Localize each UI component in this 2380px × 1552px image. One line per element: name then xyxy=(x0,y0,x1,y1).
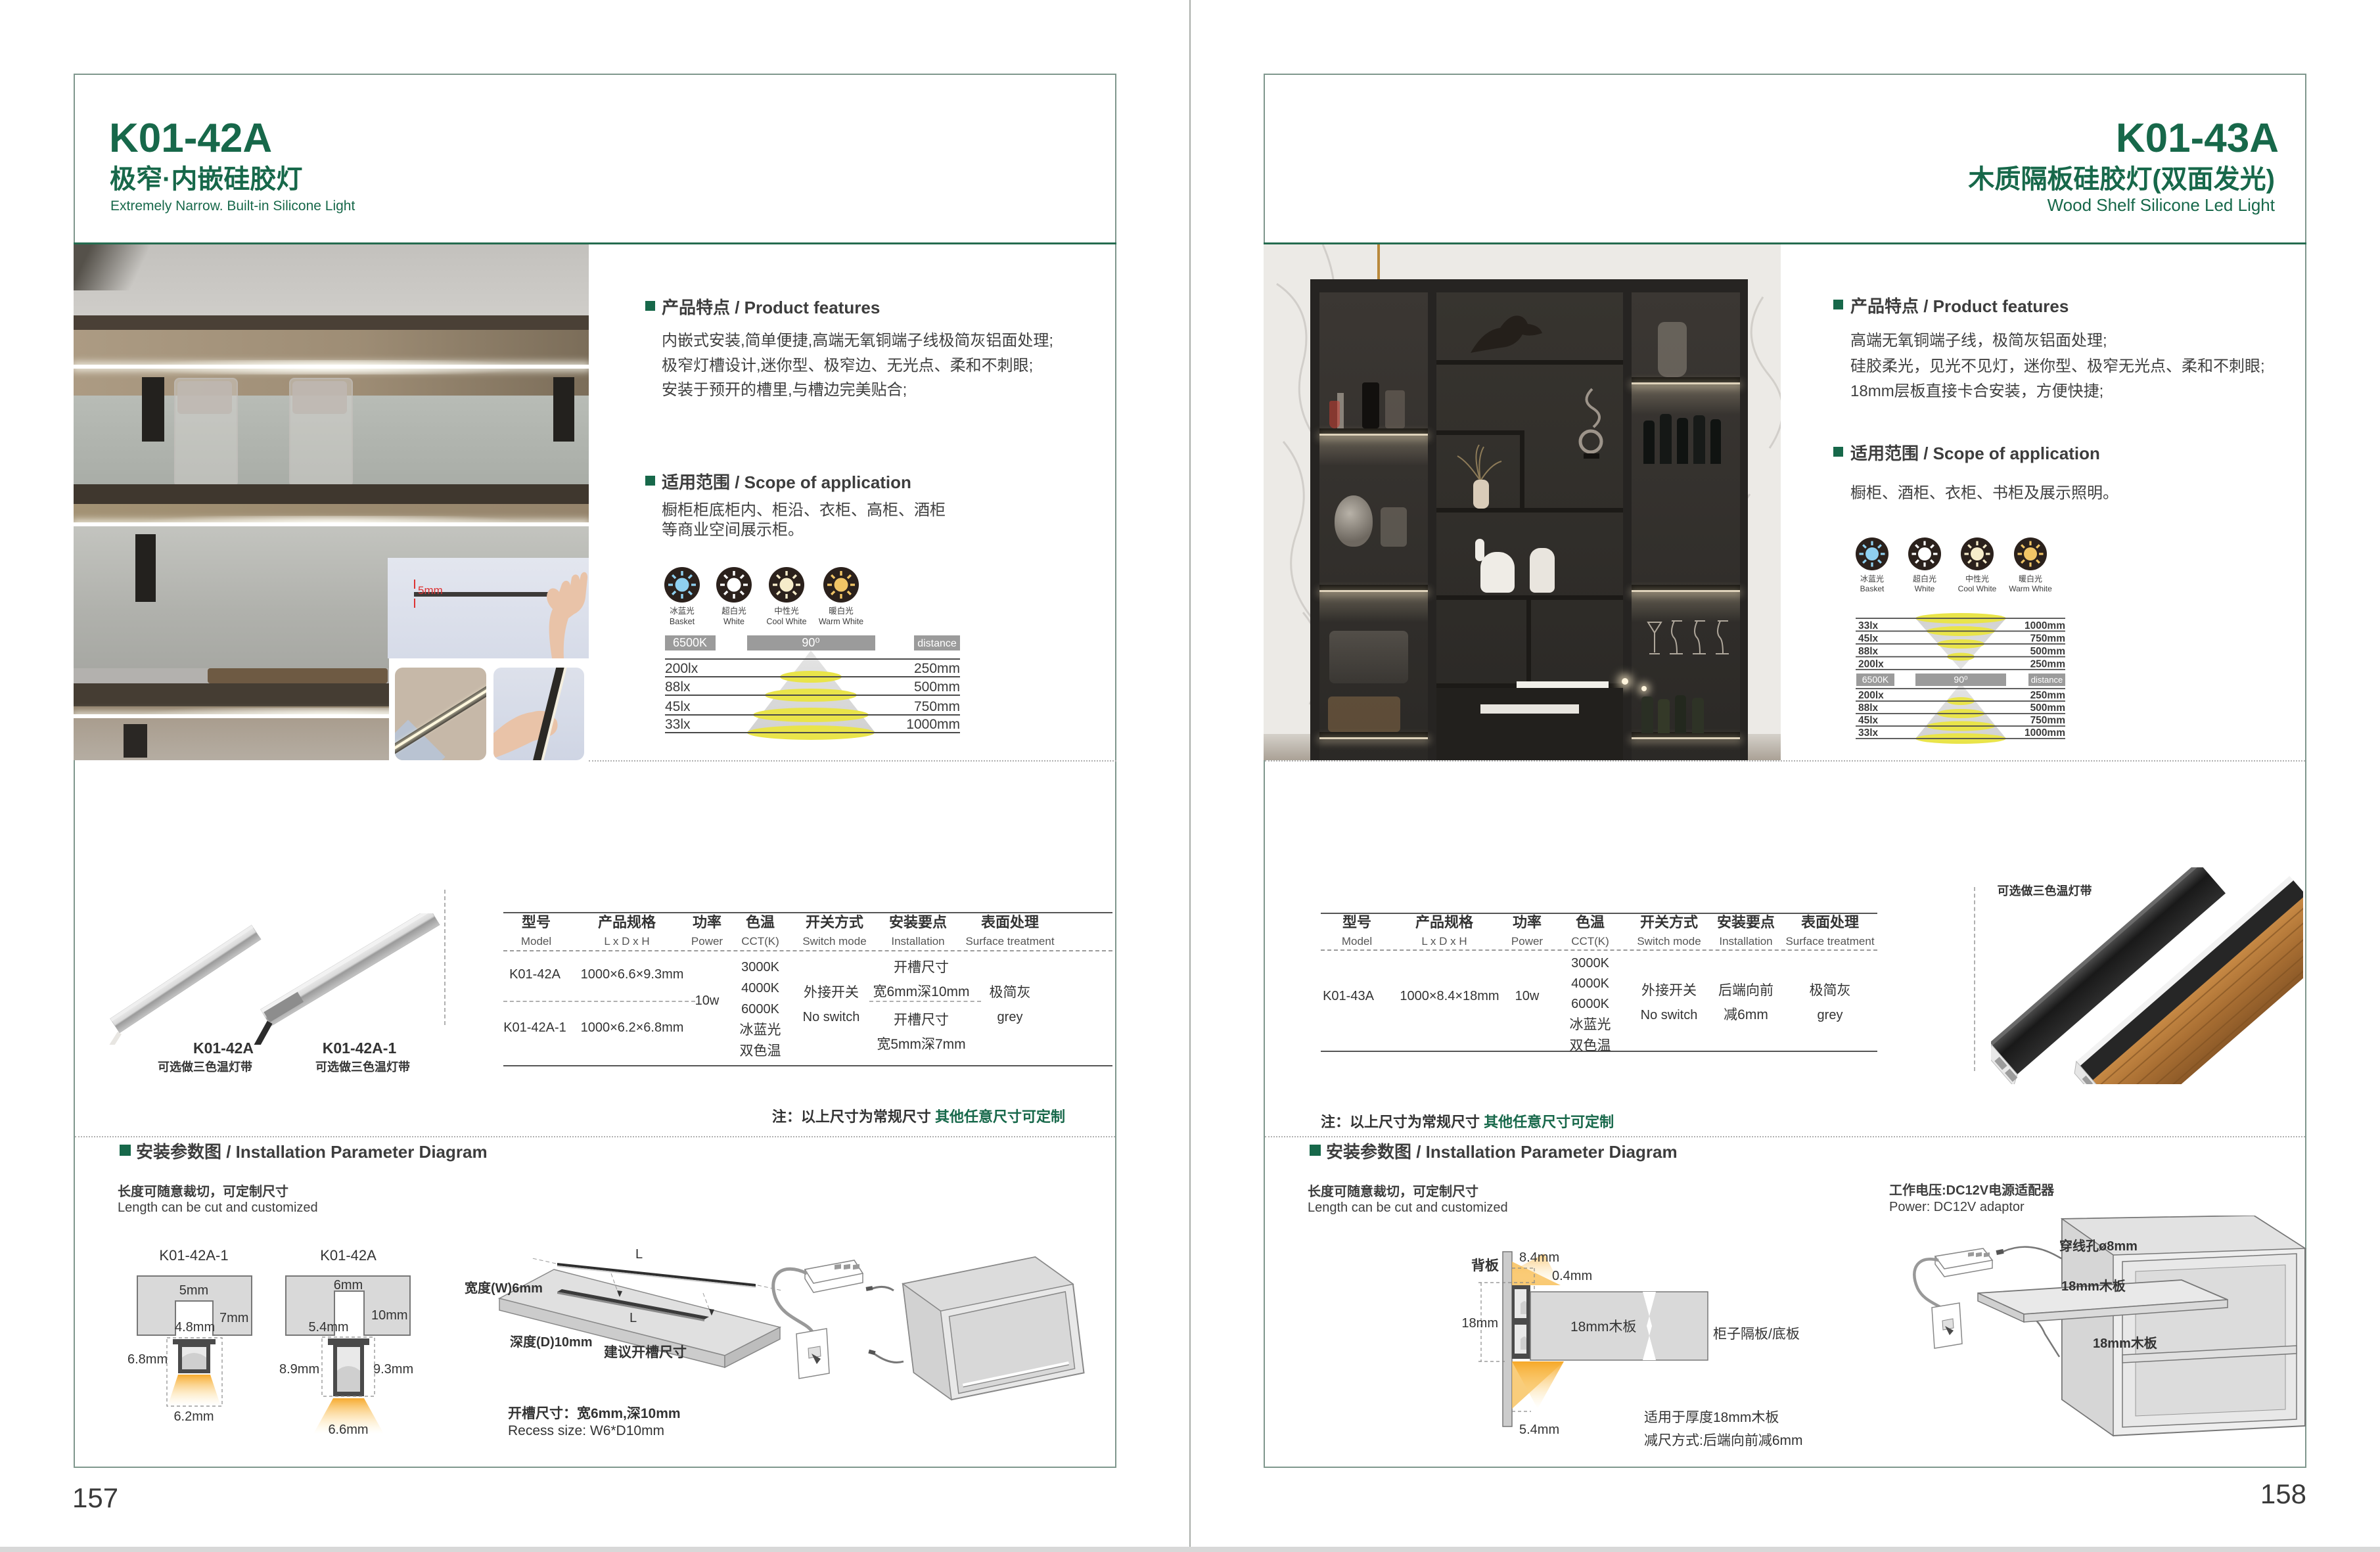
svg-text:5mm: 5mm xyxy=(179,1283,208,1298)
svg-text:6mm: 6mm xyxy=(334,1278,363,1292)
svg-text:K01-42A-1: K01-42A-1 xyxy=(159,1247,228,1264)
svg-text:distance: distance xyxy=(2031,675,2063,685)
svg-text:750mm: 750mm xyxy=(914,699,960,714)
svg-text:1000mm: 1000mm xyxy=(906,717,960,732)
svg-text:6.2mm: 6.2mm xyxy=(173,1409,214,1424)
svg-text:500mm: 500mm xyxy=(2030,646,2065,657)
svg-text:K01-42A: K01-42A xyxy=(320,1247,377,1264)
svg-text:500mm: 500mm xyxy=(914,679,960,695)
svg-text:18mm: 18mm xyxy=(1461,1316,1498,1331)
svg-text:200lx: 200lx xyxy=(1858,659,1884,670)
svg-text:33lx: 33lx xyxy=(665,717,691,732)
svg-text:200lx: 200lx xyxy=(1858,690,1884,701)
svg-text:7mm: 7mm xyxy=(219,1311,248,1325)
svg-text:6500K: 6500K xyxy=(673,636,707,649)
svg-text:8.4mm: 8.4mm xyxy=(1519,1250,1559,1265)
svg-text:5.4mm: 5.4mm xyxy=(308,1320,348,1335)
svg-text:33lx: 33lx xyxy=(1858,620,1879,631)
svg-text:88lx: 88lx xyxy=(1858,646,1879,657)
svg-text:45lx: 45lx xyxy=(1858,633,1879,645)
svg-text:250mm: 250mm xyxy=(2030,659,2065,670)
svg-text:88lx: 88lx xyxy=(1858,702,1879,714)
svg-text:45lx: 45lx xyxy=(1858,715,1879,726)
svg-text:L: L xyxy=(629,1311,637,1325)
svg-text:33lx: 33lx xyxy=(1858,727,1879,739)
svg-text:250mm: 250mm xyxy=(914,661,960,676)
svg-text:45lx: 45lx xyxy=(665,699,691,714)
svg-text:6500K: 6500K xyxy=(1862,674,1889,685)
svg-text:90⁰: 90⁰ xyxy=(1954,674,1968,685)
svg-text:10mm: 10mm xyxy=(371,1308,408,1323)
svg-text:8.9mm: 8.9mm xyxy=(279,1362,319,1377)
svg-text:750mm: 750mm xyxy=(2030,633,2065,645)
svg-text:1000mm: 1000mm xyxy=(2025,727,2065,739)
svg-text:90⁰: 90⁰ xyxy=(802,636,819,649)
svg-text:750mm: 750mm xyxy=(2030,715,2065,726)
svg-text:6.8mm: 6.8mm xyxy=(127,1352,168,1367)
svg-text:4.8mm: 4.8mm xyxy=(175,1320,215,1335)
svg-text:L: L xyxy=(635,1247,643,1262)
svg-text:5.4mm: 5.4mm xyxy=(1519,1423,1559,1437)
svg-text:0.4mm: 0.4mm xyxy=(1552,1269,1592,1283)
svg-text:9.3mm: 9.3mm xyxy=(373,1362,413,1377)
svg-text:88lx: 88lx xyxy=(665,679,691,695)
svg-text:18mm木板: 18mm木板 xyxy=(1570,1319,1636,1335)
svg-text:250mm: 250mm xyxy=(2030,690,2065,701)
svg-text:500mm: 500mm xyxy=(2030,702,2065,714)
svg-text:1000mm: 1000mm xyxy=(2025,620,2065,631)
svg-text:200lx: 200lx xyxy=(665,661,698,676)
svg-text:6.6mm: 6.6mm xyxy=(328,1423,368,1437)
svg-text:distance: distance xyxy=(917,638,957,649)
